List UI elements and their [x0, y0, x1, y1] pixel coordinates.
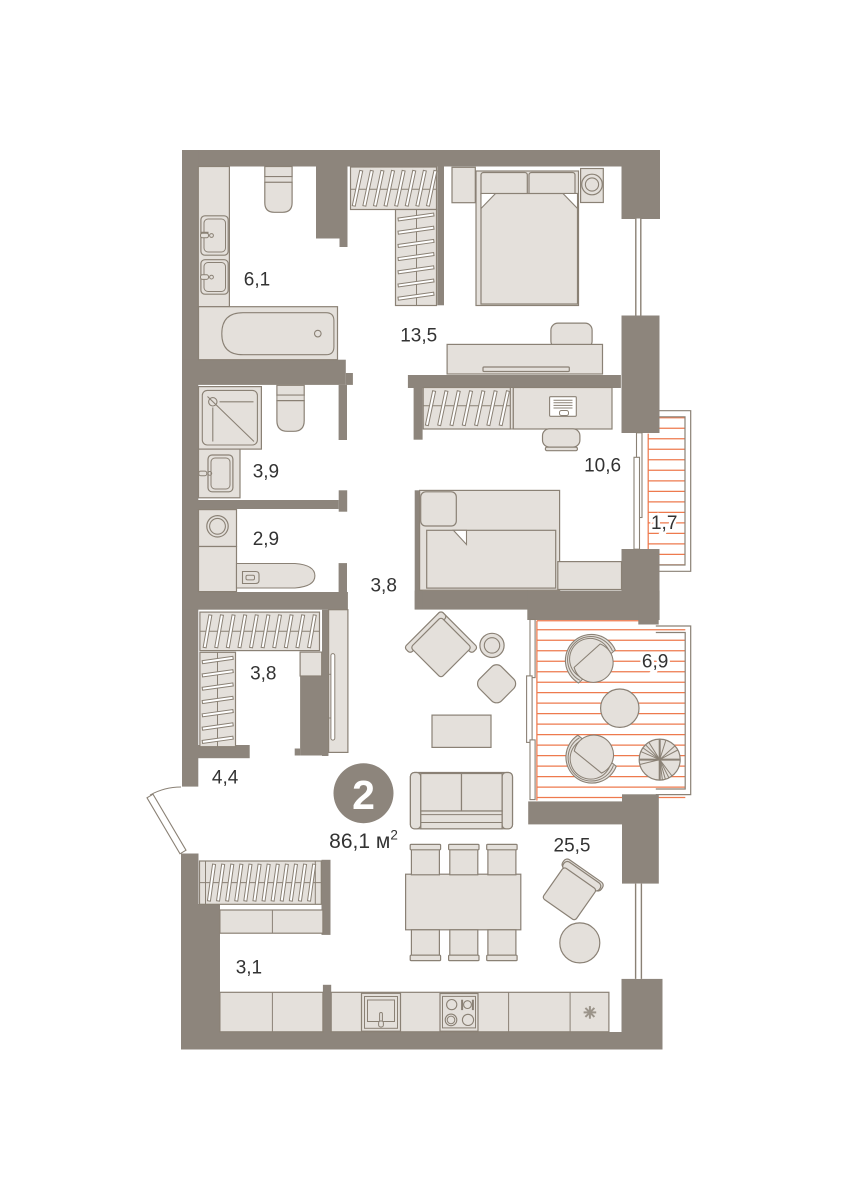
- svg-text:1,7: 1,7: [651, 513, 677, 534]
- svg-text:3,8: 3,8: [370, 576, 396, 597]
- svg-text:25,5: 25,5: [554, 836, 591, 857]
- svg-text:2: 2: [352, 772, 375, 818]
- svg-text:13,5: 13,5: [400, 326, 437, 347]
- svg-text:3,9: 3,9: [253, 462, 279, 483]
- svg-text:6,9: 6,9: [642, 652, 668, 673]
- svg-text:10,6: 10,6: [584, 456, 621, 477]
- svg-text:86,1 м2: 86,1 м2: [329, 827, 398, 853]
- svg-text:3,8: 3,8: [250, 664, 276, 685]
- svg-text:6,1: 6,1: [244, 270, 270, 291]
- svg-text:3,1: 3,1: [236, 958, 262, 979]
- svg-text:2,9: 2,9: [253, 529, 279, 550]
- svg-text:4,4: 4,4: [212, 768, 239, 789]
